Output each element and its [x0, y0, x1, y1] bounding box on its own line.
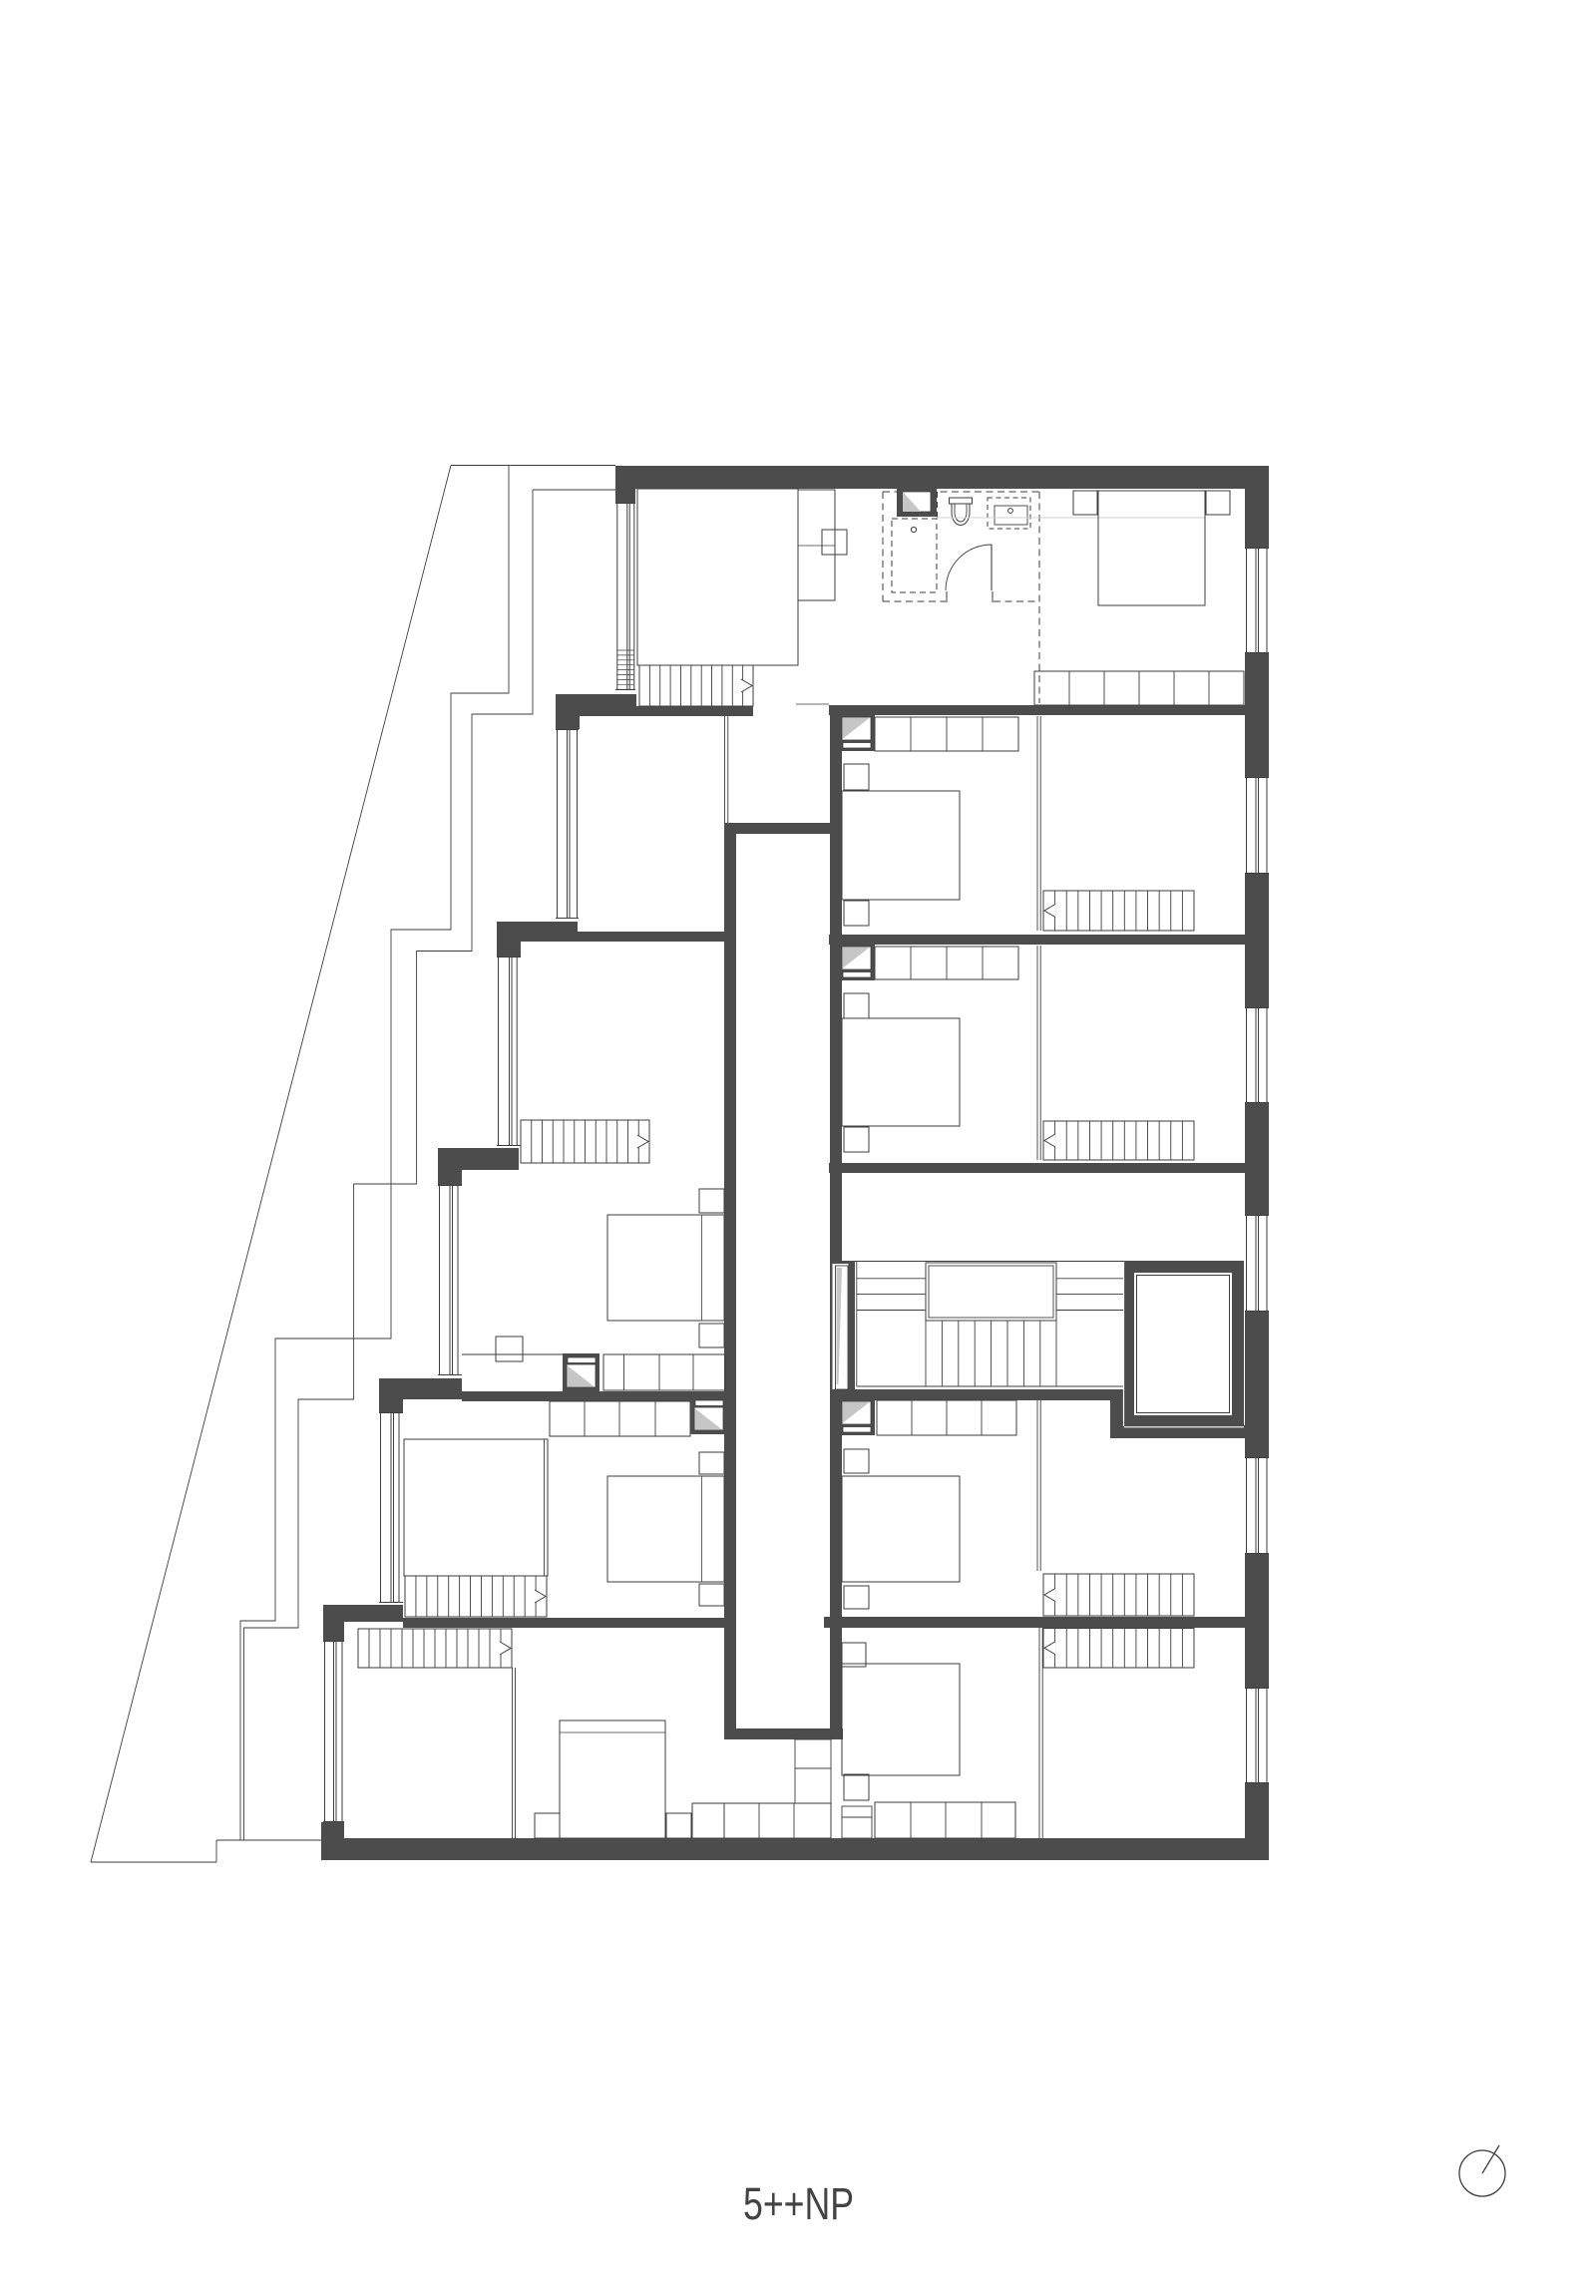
svg-text:5++NP: 5++NP — [743, 2178, 854, 2229]
